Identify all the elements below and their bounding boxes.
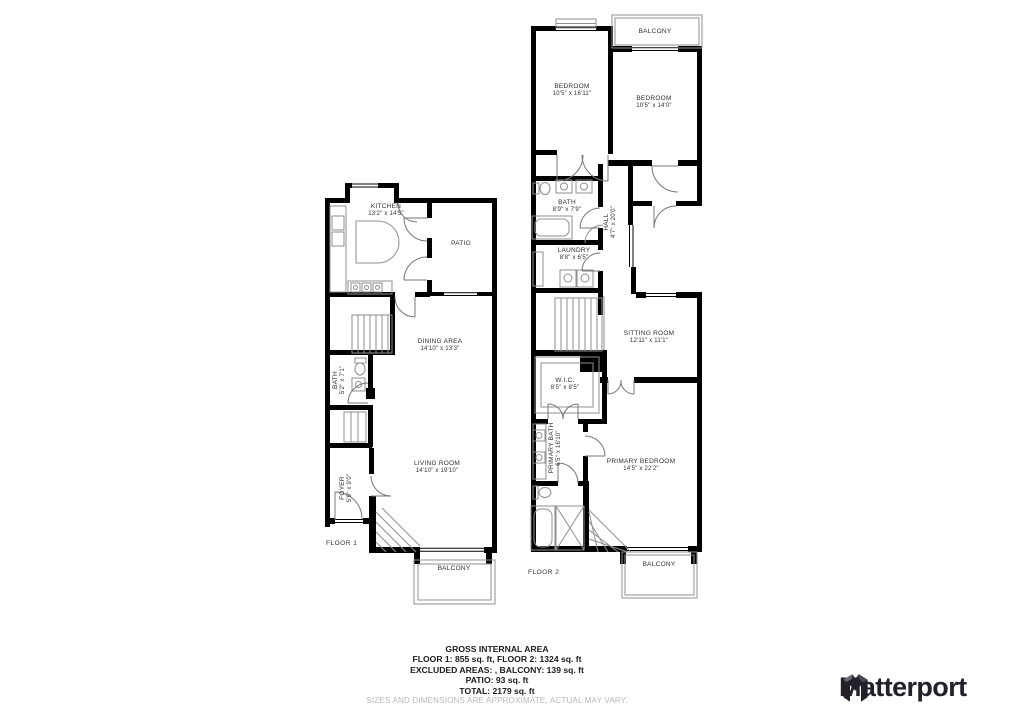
room-name: BALCONY (643, 561, 676, 569)
room-name: PRIMARY BEDROOM (607, 458, 676, 466)
room-name: FOYER (339, 474, 347, 502)
room-label-balcony-bottom: BALCONY (643, 561, 676, 569)
room-label-balcony-top: BALCONY (639, 28, 672, 36)
room-dims: 8'9" x 7'9" (553, 207, 581, 215)
room-label-bath-f1: BATH 5'2" x 7'1" (332, 366, 348, 394)
summary-excluded-line: EXCLUDED AREAS: , BALCONY: 139 sq. ft (297, 665, 697, 675)
floorplan-svg (0, 0, 1024, 724)
summary-floors-line: FLOOR 1: 855 sq. ft, FLOOR 2: 1324 sq. f… (297, 654, 697, 664)
summary-disclaimer: SIZES AND DIMENSIONS ARE APPROXIMATE, AC… (297, 696, 697, 706)
room-label-living: LIVING ROOM 14'10" x 19'10" (414, 460, 460, 476)
summary-total-line: TOTAL: 2179 sq. ft (297, 686, 697, 696)
floor2-fixtures (531, 15, 702, 598)
room-dims: 4'7" x 20'0" (611, 206, 619, 238)
floor1-label: FLOOR 1 (326, 540, 357, 547)
floor2-walls (531, 26, 702, 564)
room-dims: 10'5" x 16'11" (553, 91, 592, 99)
room-name: W.I.C. (551, 377, 579, 385)
room-dims: 5'2" x 7'1" (340, 366, 348, 394)
room-dims: 5'9" x 9'0" (347, 474, 355, 502)
room-label-balcony-f1: BALCONY (438, 565, 471, 573)
room-dims: 13'2" x 14'5" (368, 211, 404, 219)
room-dims: 8'8" x 6'5" (558, 255, 591, 263)
room-label-bath-f2: BATH 8'9" x 7'9" (553, 199, 581, 215)
room-name: KITCHEN (368, 203, 404, 211)
room-label-bedroom1: BEDROOM 10'5" x 16'11" (553, 83, 592, 99)
room-name: PATIO (451, 240, 471, 248)
floor1-windows (335, 183, 484, 551)
room-label-primary-bedroom: PRIMARY BEDROOM 14'5" x 22'2" (607, 458, 676, 474)
room-name: HALL (603, 206, 611, 238)
room-name: BEDROOM (636, 95, 672, 103)
room-name: SITTING ROOM (624, 330, 675, 338)
room-label-wic: W.I.C. 8'5" x 8'5" (551, 377, 579, 393)
room-label-laundry: LAUNDRY 8'8" x 6'5" (558, 247, 591, 263)
room-label-dining: DINING AREA 14'10" x 13'3" (418, 338, 463, 354)
room-name: DINING AREA (418, 338, 463, 346)
room-dims: 14'10" x 19'10" (414, 468, 460, 476)
room-name: LAUNDRY (558, 247, 591, 255)
room-name: LIVING ROOM (414, 460, 460, 468)
room-dims: 14'5" x 22'2" (607, 466, 676, 474)
room-name: BALCONY (639, 28, 672, 36)
room-name: PRIMARY BATH (548, 422, 556, 473)
floor2-label: FLOOR 2 (528, 569, 559, 576)
room-name: BATH (332, 366, 340, 394)
room-name: BALCONY (438, 565, 471, 573)
area-summary: GROSS INTERNAL AREA FLOOR 1: 855 sq. ft,… (297, 644, 697, 706)
room-name: BEDROOM (553, 83, 592, 91)
room-label-hall: HALL 4'7" x 20'0" (603, 206, 619, 238)
floor1-walls (325, 183, 497, 564)
room-label-primary-bath: PRIMARY BATH 6'5" x 16'10" (548, 422, 564, 473)
room-dims: 6'5" x 16'10" (556, 422, 564, 473)
matterport-logo: Matterport (839, 672, 967, 703)
room-dims: 8'5" x 8'5" (551, 385, 579, 393)
floorplan-canvas: KITCHEN 13'2" x 14'5" PATIO DINING AREA … (0, 0, 1024, 724)
room-dims: 12'11" x 11'1" (624, 338, 675, 346)
room-dims: 14'10" x 13'3" (418, 346, 463, 354)
room-label-sitting: SITTING ROOM 12'11" x 11'1" (624, 330, 675, 346)
summary-patio-line: PATIO: 93 sq. ft (297, 675, 697, 685)
room-label-kitchen: KITCHEN 13'2" x 14'5" (368, 203, 404, 219)
summary-title: GROSS INTERNAL AREA (297, 644, 697, 654)
room-label-bedroom2: BEDROOM 10'5" x 14'0" (636, 95, 672, 111)
room-name: BATH (553, 199, 581, 207)
room-dims: 10'5" x 14'0" (636, 103, 672, 111)
room-label-foyer: FOYER 5'9" x 9'0" (339, 474, 355, 502)
matterport-m-icon (839, 672, 872, 705)
room-label-patio: PATIO (451, 240, 471, 248)
